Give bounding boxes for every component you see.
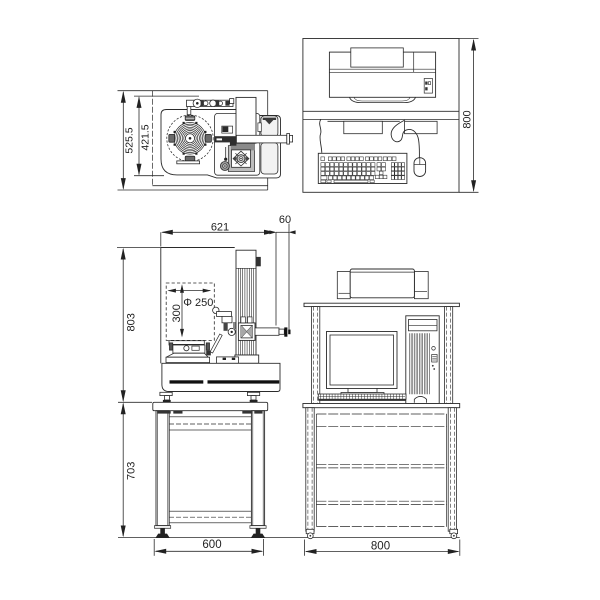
svg-text:800: 800	[462, 110, 474, 128]
svg-text:703: 703	[126, 462, 138, 480]
svg-text:Φ 250: Φ 250	[183, 297, 213, 309]
svg-text:300: 300	[171, 304, 183, 322]
svg-text:800: 800	[371, 541, 390, 553]
svg-text:421.5: 421.5	[139, 124, 151, 150]
svg-text:525.5: 525.5	[124, 127, 136, 153]
svg-text:600: 600	[202, 539, 221, 551]
svg-text:60: 60	[279, 214, 291, 226]
svg-text:621: 621	[211, 222, 229, 234]
svg-text:803: 803	[126, 313, 138, 331]
